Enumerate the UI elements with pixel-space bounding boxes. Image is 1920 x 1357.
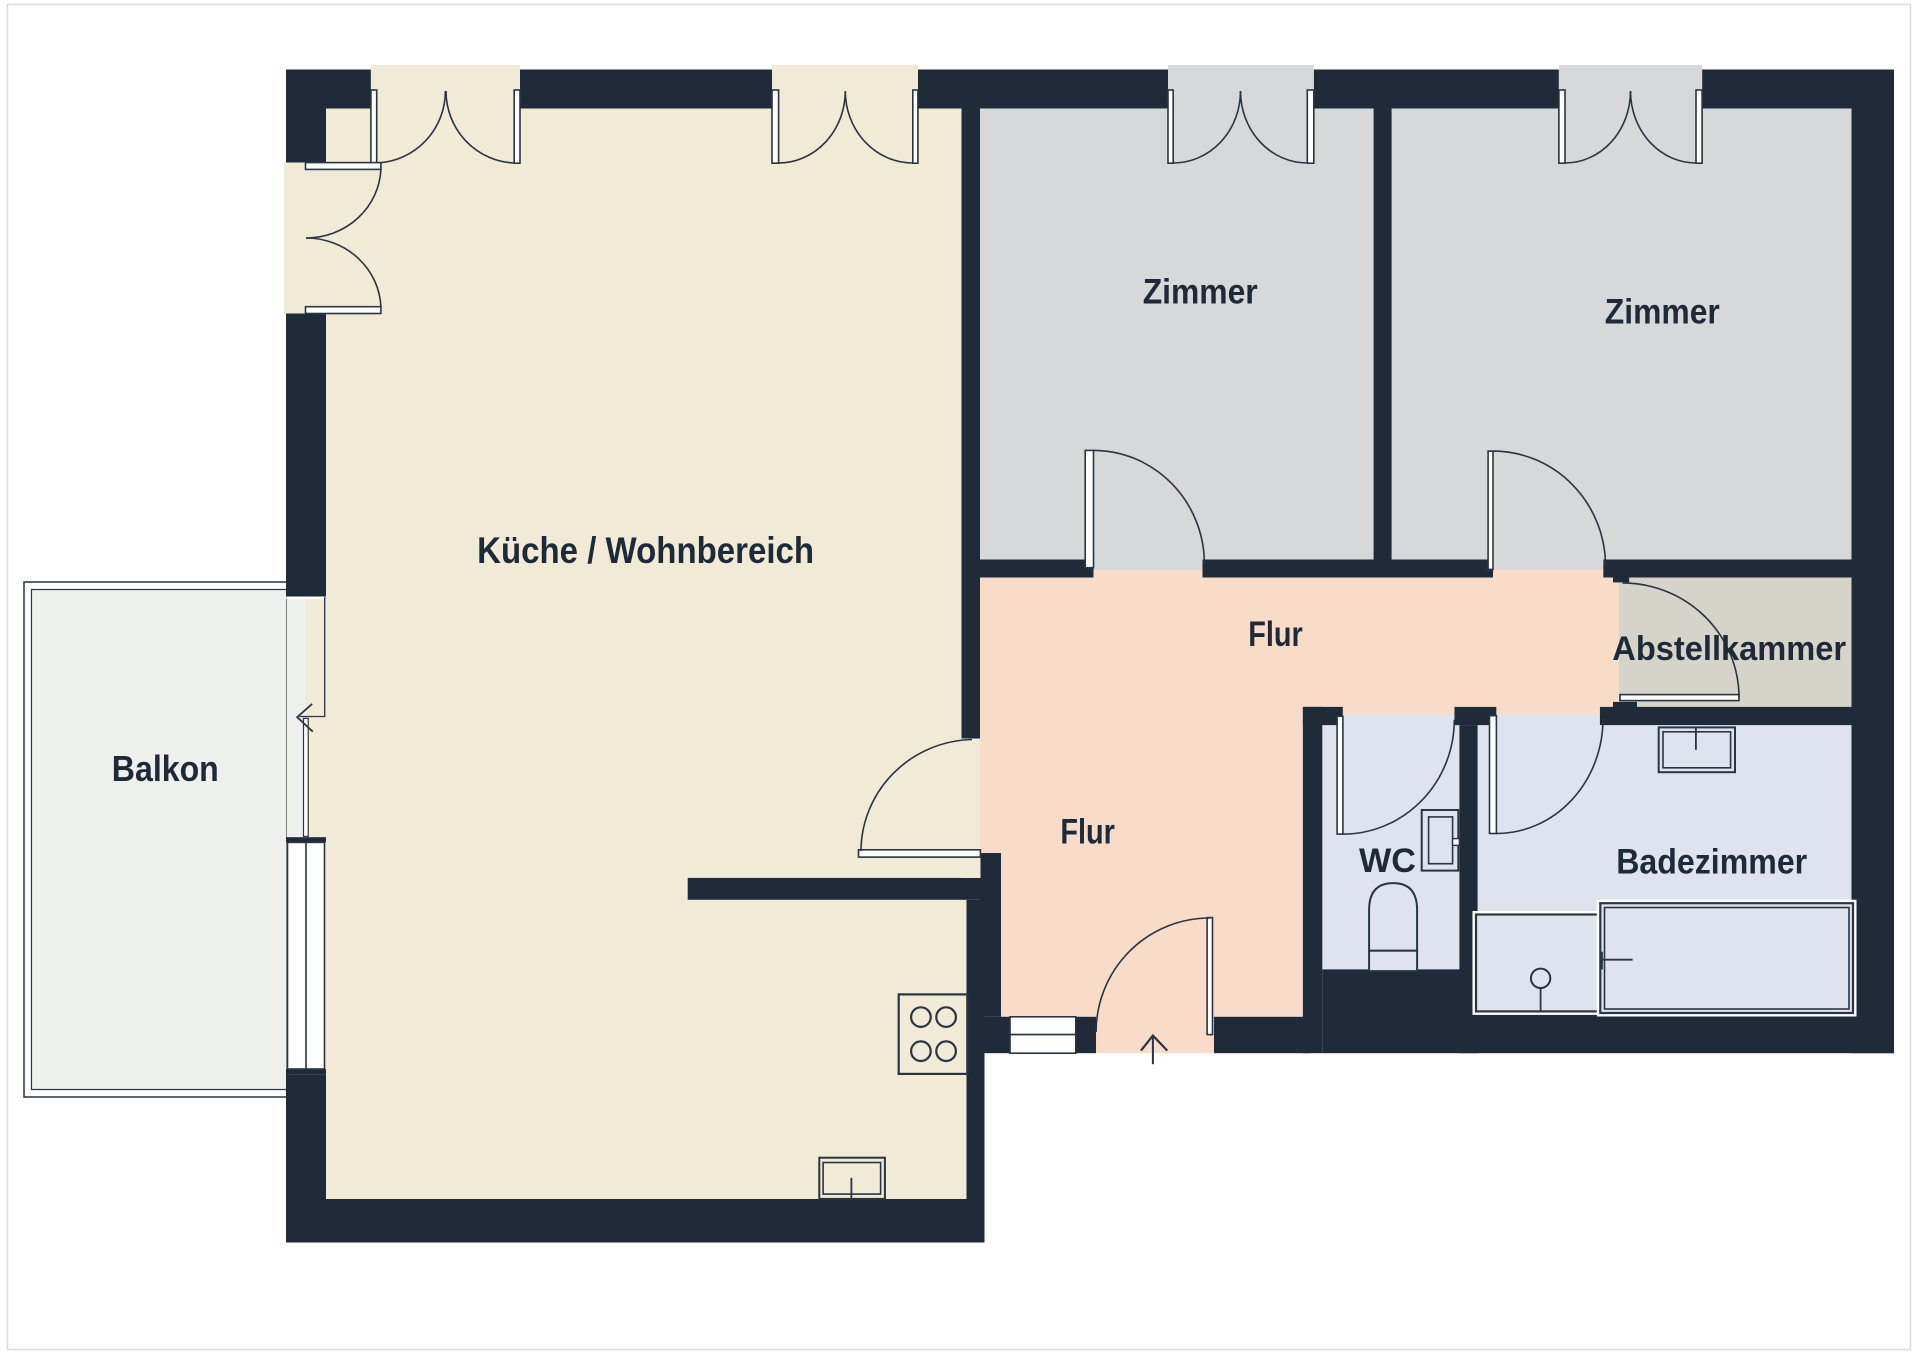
svg-text:Balkon: Balkon (112, 748, 219, 789)
svg-text:Badezimmer: Badezimmer (1616, 842, 1807, 881)
svg-text:Küche / Wohnbereich: Küche / Wohnbereich (477, 529, 814, 571)
svg-text:WC: WC (1359, 842, 1416, 880)
svg-text:Flur: Flur (1060, 813, 1115, 852)
svg-text:Flur: Flur (1248, 615, 1303, 654)
svg-text:Zimmer: Zimmer (1143, 273, 1258, 312)
svg-text:Abstellkammer: Abstellkammer (1612, 630, 1846, 668)
svg-text:Zimmer: Zimmer (1605, 293, 1720, 332)
